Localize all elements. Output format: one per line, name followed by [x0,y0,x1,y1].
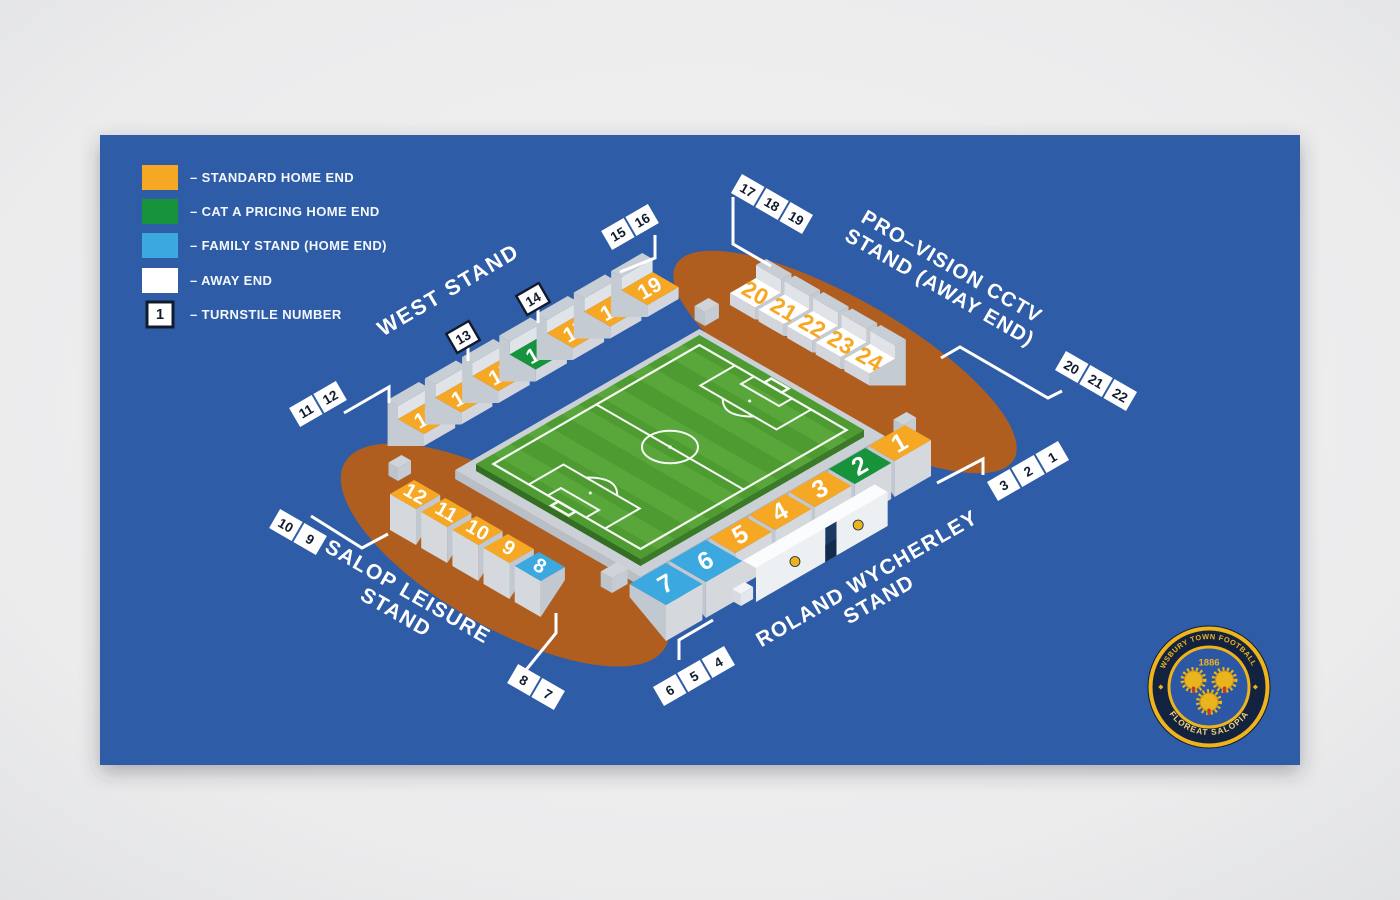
badge-year: 1886 [1198,658,1219,669]
legend-label-turnstile: – TURNSTILE NUMBER [190,307,342,322]
legend-turnstile-sample-number: 1 [156,307,164,323]
legend-label-away: – AWAY END [190,273,272,288]
building-badge-left [790,557,800,567]
legend-swatch-standard [142,165,178,190]
stadium-map: 2021222324131415161718191234567121110981… [0,0,1400,900]
legend-label-standard: – STANDARD HOME END [190,170,354,185]
legend-swatch-away [142,268,178,293]
legend-label-cat-a: – CAT A PRICING HOME END [190,204,380,219]
legend-swatch-family [142,233,178,258]
legend-label-family: – FAMILY STAND (HOME END) [190,238,387,253]
club-badge: SHREWSBURY TOWN FOOTBALL CLUB FLOREAT SA… [1148,626,1270,748]
legend-swatch-cat-a [142,199,178,224]
building-badge-right [853,520,863,530]
stadium-map-page: 2021222324131415161718191234567121110981… [0,0,1400,900]
